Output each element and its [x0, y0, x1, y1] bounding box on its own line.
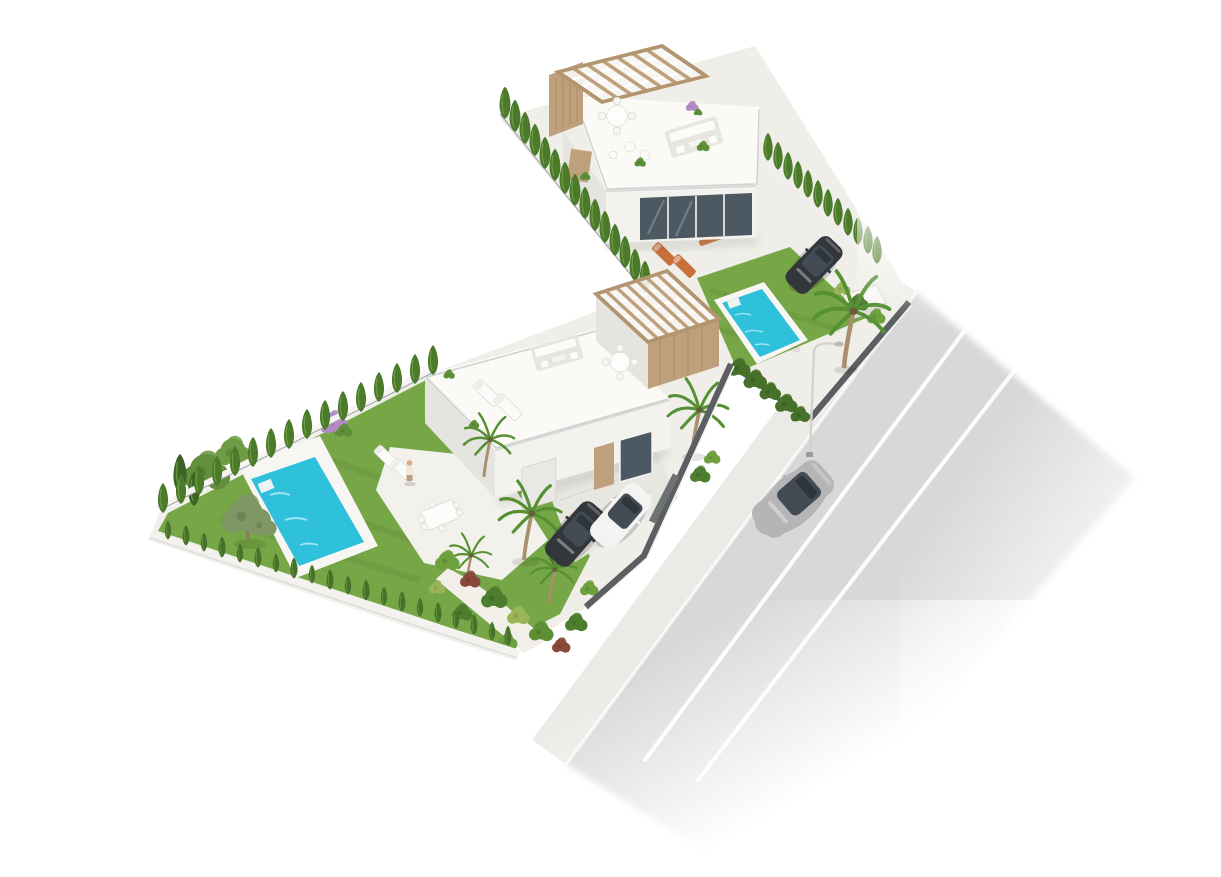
- render-stage: [0, 0, 1221, 877]
- villa-b-front-door: [594, 442, 614, 490]
- scene-svg: [0, 0, 1221, 877]
